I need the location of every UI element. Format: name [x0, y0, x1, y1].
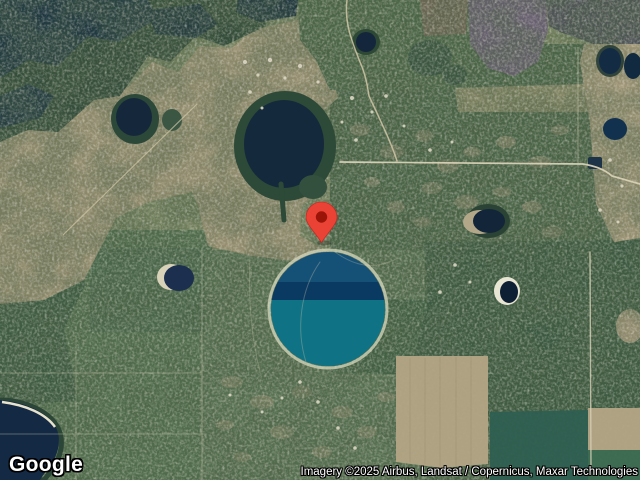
google-logo[interactable]: Google — [9, 453, 83, 477]
imagery-attribution: Imagery ©2025 Airbus, Landsat / Copernic… — [301, 466, 638, 478]
circular-lake — [269, 250, 389, 368]
map-viewport[interactable]: Google Imagery ©2025 Airbus, Landsat / C… — [0, 0, 640, 480]
satellite-map-canvas[interactable] — [0, 0, 640, 480]
